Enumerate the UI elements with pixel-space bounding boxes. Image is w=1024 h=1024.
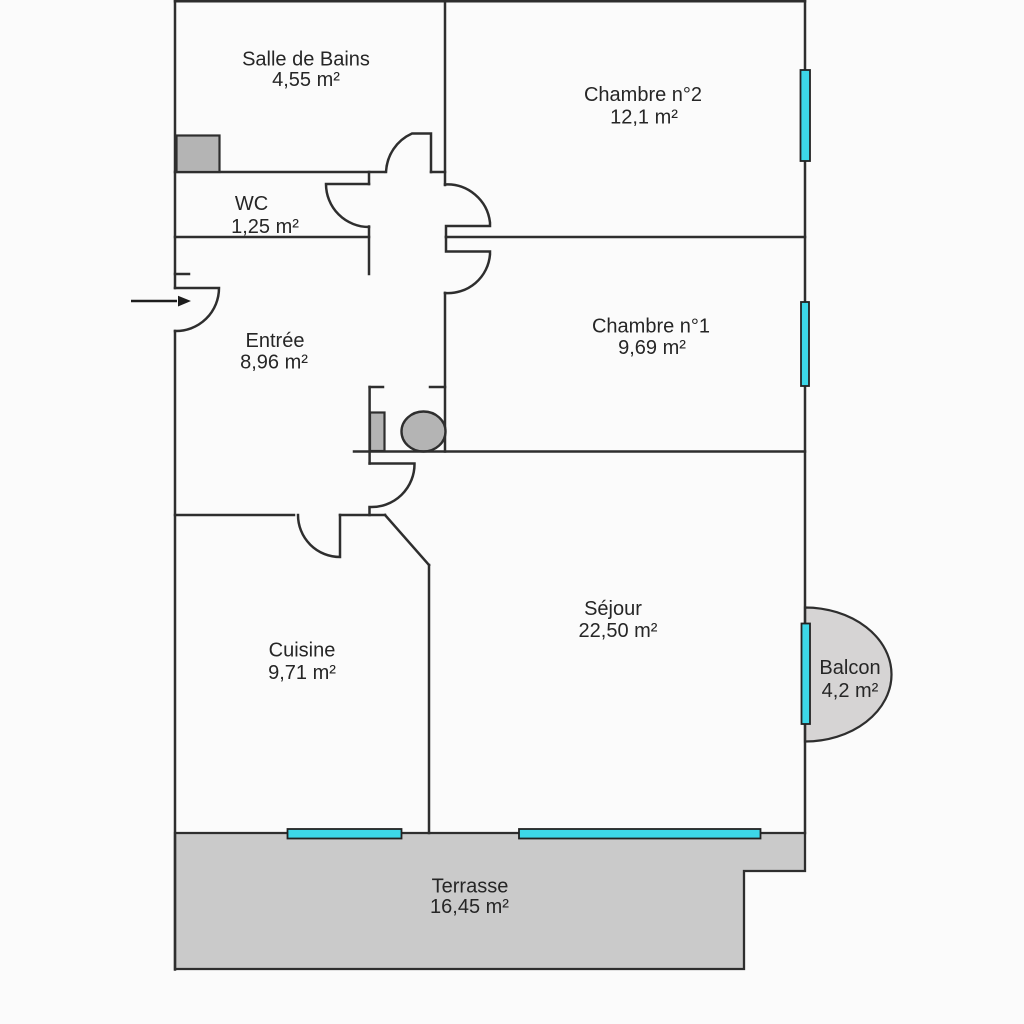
svg-text:Entrée: Entrée: [246, 330, 305, 352]
svg-text:WC: WC: [235, 193, 268, 215]
svg-text:4,2 m²: 4,2 m²: [822, 680, 879, 702]
svg-text:22,50 m²: 22,50 m²: [579, 620, 658, 642]
svg-text:Terrasse: Terrasse: [432, 876, 509, 898]
svg-text:1,25 m²: 1,25 m²: [231, 216, 299, 238]
svg-text:Balcon: Balcon: [819, 657, 880, 679]
svg-text:Séjour: Séjour: [584, 598, 642, 620]
svg-text:Salle de Bains: Salle de Bains: [242, 49, 370, 71]
svg-text:Chambre n°1: Chambre n°1: [592, 316, 710, 338]
svg-text:Cuisine: Cuisine: [269, 640, 336, 662]
svg-text:12,1 m²: 12,1 m²: [610, 107, 678, 129]
svg-text:9,71 m²: 9,71 m²: [268, 662, 336, 684]
svg-text:8,96 m²: 8,96 m²: [240, 352, 308, 374]
svg-text:9,69 m²: 9,69 m²: [618, 337, 686, 359]
svg-text:Chambre n°2: Chambre n°2: [584, 84, 702, 106]
svg-text:16,45 m²: 16,45 m²: [430, 896, 509, 918]
svg-text:4,55 m²: 4,55 m²: [272, 69, 340, 91]
